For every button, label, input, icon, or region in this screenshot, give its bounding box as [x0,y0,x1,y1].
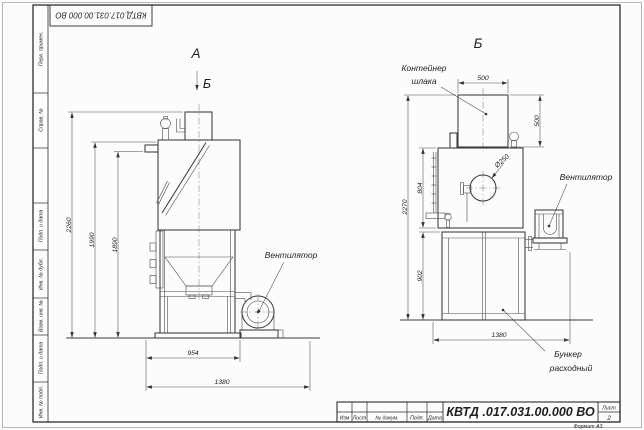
dim-front-overall-width: 1380 [214,379,229,386]
revision-col-podp: Подп. [410,416,424,422]
fan-side-drawing [525,210,567,251]
side-valve-handwheel [510,132,519,141]
margin-label-sprav-no: Справ. № [39,108,45,132]
top-stamp-designation: КВТД.017.031.00.000 ВО [55,11,146,20]
view-direction-label: Б [203,77,211,91]
title-block: Изм Лист № докум. Подп. Дата КВТД .017.0… [337,402,620,430]
dim-side-overall-width: 1380 [491,332,506,339]
dim-front-total-height: 2260 [66,217,73,233]
top-valve-handwheel [161,119,171,129]
revision-col-list: Лист [352,416,367,422]
drawing-sheet: Перв. примен. Справ. № Подп. и дата Инв.… [0,0,644,430]
revision-col-data: Дата [427,416,442,422]
side-view: Б Контейнер шлака Ø250 [400,36,613,373]
sheet-label: Лист [601,406,616,412]
margin-label-inv-podl: Инв. № подл. [39,386,45,418]
dim-side-container-width: 500 [477,75,489,82]
fan-callout-side: Вентилятор [560,172,613,182]
dim-front-body-height: 1990 [89,232,96,247]
hopper-callout-line2: расходный [549,363,593,373]
dim-side-container-height: 500 [534,115,541,127]
side-inlet-pipe [145,145,158,152]
slag-container-callout-line2: шлака [411,76,437,86]
front-view-label: А [190,46,200,61]
front-view: А Б [66,46,320,391]
dim-front-inlet-height: 1890 [112,237,119,252]
margin-label-perv-primen: Перв. примен. [39,32,45,66]
dim-side-hole-dia: Ø250 [493,153,511,170]
slag-container-callout-line1: Контейнер [401,63,446,73]
fan-front-drawing [240,294,283,338]
hopper-drawing [442,232,525,320]
fan-callout-front: Вентилятор [265,250,318,260]
margin-label-vzam-inv: Взам. инв. № [39,300,45,332]
title-designation: КВТД .017.031.00.000 ВО [446,405,595,419]
margin-label-podp-data-1: Подп. и дата [39,210,45,243]
margin-label-inv-dubl: Инв. № дубл. [39,258,45,290]
top-stub-pipe [450,133,457,148]
side-view-label: Б [474,36,483,51]
margin-label-podp-data-2: Подп. и дата [39,342,45,375]
hopper-callout-line1: Бункер [554,349,582,359]
dim-side-total-height: 2270 [402,199,409,215]
drawing-canvas: Перв. примен. Справ. № Подп. и дата Инв.… [0,0,644,430]
dim-side-hopper-height: 902 [417,270,424,282]
sheet-number: 2 [606,415,611,422]
format-label: Формат А3 [574,424,603,430]
revision-col-docnum: № докум. [375,416,398,422]
dim-front-body-width: 954 [187,350,199,357]
chimney-pipe [177,119,186,133]
dim-side-upper-height: 804 [417,182,424,194]
revision-col-izm: Изм [340,416,350,422]
drawing-frame: Перв. примен. Справ. № Подп. и дата Инв.… [3,3,642,428]
